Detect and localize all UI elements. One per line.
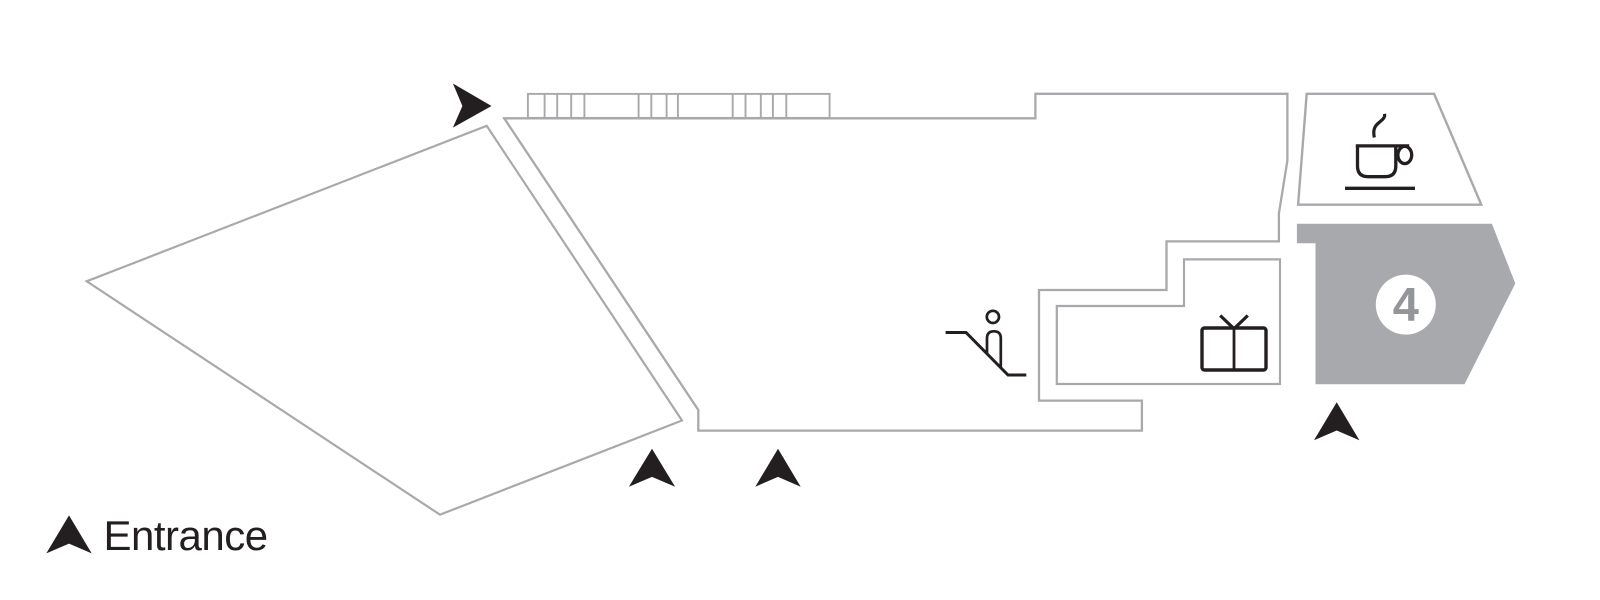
svg-text:4: 4	[1393, 277, 1419, 330]
svg-text:Entrance: Entrance	[104, 512, 268, 559]
